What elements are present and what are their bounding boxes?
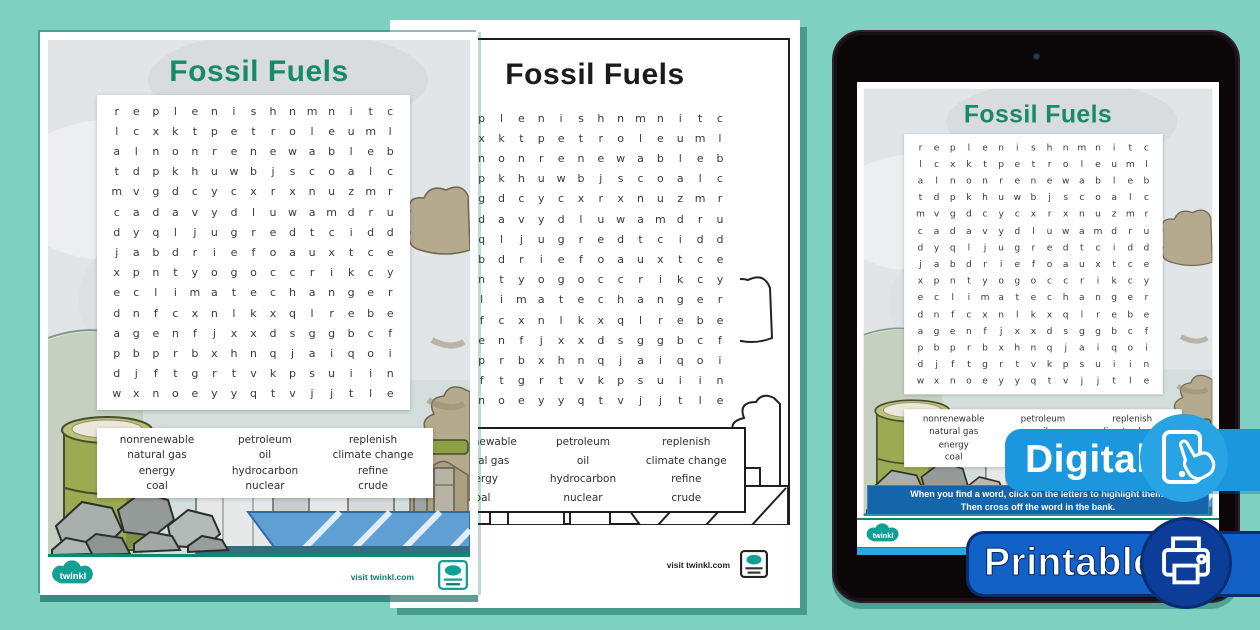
grid-letter: k [591,371,611,391]
grid-letter: l [361,162,381,182]
grid-letter: t [224,364,244,384]
grid-letter: t [341,384,361,404]
grid-letter: b [185,343,205,363]
grid-letter: g [1009,239,1025,256]
grid-letter: k [166,121,186,141]
grid-letter: c [710,169,730,189]
grid-row: replenishnmnitc [107,101,400,121]
grid-letter: d [551,209,571,229]
grid-letter: g [631,330,651,350]
grid-letter: y [380,263,400,283]
grid-letter: h [977,189,993,206]
grid-letter: b [361,303,381,323]
grid-letter: u [1090,356,1106,373]
grid-letter: t [302,222,322,242]
grid-letter: a [912,323,928,340]
grid-letter: e [551,128,571,148]
grid-letter: d [1009,223,1025,240]
grid-letter: x [224,323,244,343]
grid-letter: a [492,209,512,229]
grid-letter: o [571,270,591,290]
grid-letter: t [1106,373,1122,390]
grid-letter: r [1041,156,1057,173]
grid-letter: d [611,229,631,249]
grid-letter: d [1138,239,1154,256]
grid-letter: t [1074,239,1090,256]
grid-letter: g [302,323,322,343]
grid-letter: q [571,391,591,411]
grid-letter: a [993,289,1009,306]
grid-row: xpntyogoccrikcy [107,263,400,283]
grid-letter: r [977,256,993,273]
grid-letter: b [1138,172,1154,189]
grid-letter: o [166,141,186,161]
grid-letter: x [263,303,283,323]
word-bank-item: hydrocarbon [531,473,634,485]
grid-letter: t [166,263,186,283]
grid-letter: e [146,323,166,343]
grid-row: alnonrenewableb [107,141,400,161]
grid-letter: f [380,323,400,343]
grid-row: alnonrenewableb [912,172,1154,189]
grid-letter: r [380,283,400,303]
grid-row: tdpkhuwbjscoalc [107,162,400,182]
grid-letter: y [531,391,551,411]
grid-letter: h [1041,139,1057,156]
grid-letter: j [1041,189,1057,206]
grid-letter: b [322,141,342,161]
grid-letter: q [341,343,361,363]
grid-letter: u [993,189,1009,206]
grid-letter: c [1122,273,1138,290]
grid-letter: g [224,222,244,242]
grid-letter: i [1106,139,1122,156]
grid-letter: e [1041,239,1057,256]
grid-letter: a [961,223,977,240]
grid-letter: u [650,371,670,391]
grid-letter: p [107,343,127,363]
grid-letter: j [977,239,993,256]
grid-letter: r [710,189,730,209]
grid-letter: s [571,108,591,128]
grid-letter: e [912,289,928,306]
grid-letter: c [127,283,147,303]
grid-letter: v [611,391,631,411]
grid-letter: l [929,172,945,189]
grid-letter: n [511,148,531,168]
grid-letter: g [322,323,342,343]
grid-letter: h [224,343,244,363]
grid-letter: x [571,189,591,209]
grid-letter: p [945,189,961,206]
grid-letter: t [107,162,127,182]
grid-letter: m [107,182,127,202]
word-bank-item: natural gas [909,427,998,437]
grid-row: agenfjxxdsggbcf [912,323,1154,340]
grid-letter: v [571,371,591,391]
grid-letter: t [1041,373,1057,390]
grid-letter: d [1122,239,1138,256]
grid-letter: n [650,108,670,128]
grid-letter: u [1138,223,1154,240]
grid-letter: i [341,101,361,121]
grid-row: xpntyogoccrikcy [912,273,1154,290]
grid-letter: g [127,323,147,343]
grid-letter: r [1138,289,1154,306]
grid-letter: r [993,172,1009,189]
grid-letter: n [710,371,730,391]
grid-letter: n [571,350,591,370]
grid-letter: f [185,323,205,343]
grid-letter: i [1138,339,1154,356]
word-bank-item: oil [211,449,319,461]
grid-letter: q [283,303,303,323]
grid-letter: o [361,343,381,363]
grid-letter: e [1009,156,1025,173]
grid-letter: c [912,223,928,240]
word-bank-item: petroleum [211,434,319,446]
grid-letter: q [1025,373,1041,390]
grid-letter: s [244,101,264,121]
grid-letter: t [1025,156,1041,173]
grid-letter: h [591,108,611,128]
grid-letter: b [1106,323,1122,340]
grid-letter: t [961,273,977,290]
grid-letter: u [591,209,611,229]
grid-letter: i [1106,356,1122,373]
grid-letter: y [531,209,551,229]
grid-letter: l [631,128,651,148]
grid-letter: t [492,270,512,290]
grid-letter: e [1009,172,1025,189]
grid-letter: l [492,229,512,249]
grid-letter: o [611,128,631,148]
grid-letter: n [322,101,342,121]
grid-letter: b [511,350,531,370]
grid-letter: l [380,121,400,141]
grid-letter: i [166,283,186,303]
grid-letter: g [929,323,945,340]
grid-letter: i [670,229,690,249]
grid-letter: o [492,391,512,411]
grid-letter: m [1122,156,1138,173]
grid-letter: t [185,121,205,141]
grid-letter: w [1009,189,1025,206]
grid-letter: y [929,239,945,256]
grid-letter: e [361,141,381,161]
grid-letter: y [531,189,551,209]
grid-letter: x [1025,206,1041,223]
grid-letter: c [1009,206,1025,223]
grid-letter: f [511,330,531,350]
grid-letter: r [244,222,264,242]
grid-letter: e [1138,256,1154,273]
grid-letter: o [244,263,264,283]
grid-letter: w [224,162,244,182]
grid-letter: m [322,202,342,222]
grid-letter: l [302,121,322,141]
grid-letter: c [1090,239,1106,256]
grid-letter: y [710,270,730,290]
grid-letter: e [511,391,531,411]
grid-letter: c [929,156,945,173]
grid-letter: c [710,108,730,128]
grid-letter: u [1090,206,1106,223]
grid-letter: i [690,371,710,391]
grid-letter: e [977,139,993,156]
word-bank-column: petroleumoilhydrocarbonnuclear [211,432,319,494]
grid-letter: r [263,182,283,202]
grid-letter: j [302,384,322,404]
grid-letter: t [244,121,264,141]
worksheet-title: Fossil Fuels [857,101,1219,129]
grid-letter: i [531,249,551,269]
grid-letter: x [929,373,945,390]
grid-letter: l [224,303,244,323]
grid-letter: s [1058,189,1074,206]
grid-letter: e [571,290,591,310]
grid-letter: d [107,222,127,242]
grid-letter: i [670,108,690,128]
grid-letter: t [511,128,531,148]
grid-letter: e [361,283,381,303]
grid-row: dnfcxnlkxqlrebe [107,303,400,323]
grid-letter: s [283,323,303,343]
grid-letter: c [977,206,993,223]
grid-letter: x [1090,256,1106,273]
grid-letter: d [710,229,730,249]
grid-letter: i [341,222,361,242]
grid-letter: o [961,373,977,390]
grid-letter: j [511,229,531,249]
grid-letter: n [1090,289,1106,306]
grid-letter: q [591,350,611,370]
grid-letter: e [1122,289,1138,306]
grid-letter: s [611,169,631,189]
grid-letter: j [993,323,1009,340]
twinkl-logo-text: twinkl [60,570,87,581]
grid-letter: u [341,121,361,141]
grid-letter: r [380,182,400,202]
grid-letter: n [146,263,166,283]
grid-letter: p [945,139,961,156]
word-bank-item: nonrenewable [103,434,211,446]
grid-letter: t [670,249,690,269]
grid-letter: r [263,121,283,141]
product-preview: Fossil Fuels replenishnmnitclcxktpetrole… [0,0,1260,630]
grid-letter: g [341,283,361,303]
grid-letter: i [341,364,361,384]
grid-letter: u [993,239,1009,256]
grid-letter: r [511,249,531,269]
grid-letter: o [1122,339,1138,356]
grid-letter: k [670,270,690,290]
grid-letter: n [1025,339,1041,356]
grid-letter: c [690,270,710,290]
grid-letter: l [1122,189,1138,206]
grid-letter: i [670,371,690,391]
grid-letter: o [322,162,342,182]
word-search-grid: replenishnmnitclcxktpetroleumlalnonrenew… [904,134,1163,394]
grid-letter: e [263,141,283,161]
grid-letter: a [302,202,322,222]
grid-letter: s [1074,356,1090,373]
grid-letter: c [1041,289,1057,306]
grid-letter: c [302,162,322,182]
grid-letter: w [551,169,571,189]
word-bank-column: replenishclimate changerefinecrude [635,433,738,507]
grid-letter: k [1025,306,1041,323]
grid-letter: u [380,202,400,222]
word-bank-item: replenish [319,434,427,446]
word-bank-item: nonrenewable [909,414,998,424]
grid-letter: u [205,162,225,182]
grid-letter: x [650,249,670,269]
grid-letter: t [263,384,283,404]
grid-letter: n [127,303,147,323]
grid-letter: j [1090,373,1106,390]
printable-badge[interactable]: Printable [966,531,1260,597]
word-bank-column: replenishclimate changerefinecrude [319,432,427,494]
grid-letter: b [670,330,690,350]
grid-letter: e [185,384,205,404]
grid-letter: y [1138,273,1154,290]
grid-letter: c [551,189,571,209]
grid-row: replenishnmnitc [912,139,1154,156]
grid-letter: a [631,350,651,370]
grid-letter: c [361,263,381,283]
grid-letter: l [302,303,322,323]
grid-letter: y [205,384,225,404]
grid-letter: k [492,128,512,148]
grid-letter: w [1058,223,1074,240]
grid-letter: x [322,242,342,262]
word-bank-item: energy [103,465,211,477]
grid-letter: j [929,356,945,373]
grid-letter: t [571,128,591,148]
grid-letter: d [492,249,512,269]
grid-letter: i [650,270,670,290]
grid-letter: k [1041,356,1057,373]
grid-letter: x [127,384,147,404]
grid-letter: y [205,202,225,222]
grid-row: cadavydluwamdru [912,223,1154,240]
grid-letter: a [1074,172,1090,189]
printable-badge-circle [1140,517,1232,609]
grid-letter: d [1041,323,1057,340]
visit-twinkl-text: visit twinkl.com [351,572,414,582]
grid-letter: i [1122,356,1138,373]
grid-letter: x [591,310,611,330]
grid-letter: a [166,202,186,222]
grid-letter: k [263,364,283,384]
grid-letter: n [945,273,961,290]
grid-letter: m [1090,223,1106,240]
grid-letter: r [591,128,611,148]
grid-letter: a [302,343,322,363]
grid-letter: e [380,242,400,262]
grid-letter: j [650,391,670,411]
grid-letter: u [670,128,690,148]
grid-letter: e [380,303,400,323]
grid-letter: r [993,356,1009,373]
grid-letter: e [929,139,945,156]
grid-letter: n [945,373,961,390]
grid-letter: u [322,182,342,202]
grid-letter: a [127,202,147,222]
grid-letter: i [322,263,342,283]
grid-letter: t [977,156,993,173]
grid-letter: c [361,323,381,343]
grid-letter: a [912,172,928,189]
grid-letter: i [361,364,381,384]
grid-letter: x [611,189,631,209]
grid-letter: a [611,249,631,269]
grid-row: mvgdcycxrxnuzmr [912,206,1154,223]
digital-badge[interactable]: Digital [1005,429,1260,491]
grid-letter: e [224,242,244,262]
grid-letter: y [993,223,1009,240]
grid-letter: g [650,330,670,350]
grid-letter: e [224,141,244,161]
grid-letter: t [224,283,244,303]
grid-letter: q [146,222,166,242]
grid-row: eclimatechanger [107,283,400,303]
twinkl-logo: twinkl [50,560,96,588]
grid-letter: v [127,182,147,202]
grid-row: agenfjxxdsggbcf [107,323,400,343]
grid-letter: r [166,343,186,363]
grid-letter: l [961,139,977,156]
grid-letter: a [670,169,690,189]
grid-letter: o [492,148,512,168]
grid-letter: t [1009,289,1025,306]
grid-letter: c [107,202,127,222]
grid-letter: m [650,209,670,229]
grid-letter: v [244,364,264,384]
grid-letter: w [1058,172,1074,189]
grid-letter: x [945,156,961,173]
grid-letter: a [127,242,147,262]
grid-letter: o [690,350,710,370]
grid-letter: q [1041,339,1057,356]
grid-letter: t [341,242,361,262]
grid-letter: n [650,290,670,310]
grid-letter: n [1058,139,1074,156]
grid-letter: h [611,290,631,310]
word-bank-item: oil [531,455,634,467]
grid-letter: r [591,189,611,209]
grid-letter: e [551,148,571,168]
grid-letter: r [1122,223,1138,240]
grid-letter: x [1009,323,1025,340]
grid-letter: t [492,371,512,391]
grid-letter: f [1025,256,1041,273]
grid-letter: z [341,182,361,202]
grid-letter: l [945,289,961,306]
grid-letter: c [611,270,631,290]
grid-letter: l [710,128,730,148]
grid-letter: r [205,141,225,161]
grid-letter: s [611,330,631,350]
grid-letter: n [302,182,322,202]
grid-row: lcxktpetroleuml [107,121,400,141]
grid-letter: o [205,263,225,283]
word-search-grid: replenishnmnitclcxktpetroleumlalnonrenew… [97,95,410,410]
grid-letter: i [551,108,571,128]
grid-letter: l [492,108,512,128]
grid-letter: y [224,384,244,404]
